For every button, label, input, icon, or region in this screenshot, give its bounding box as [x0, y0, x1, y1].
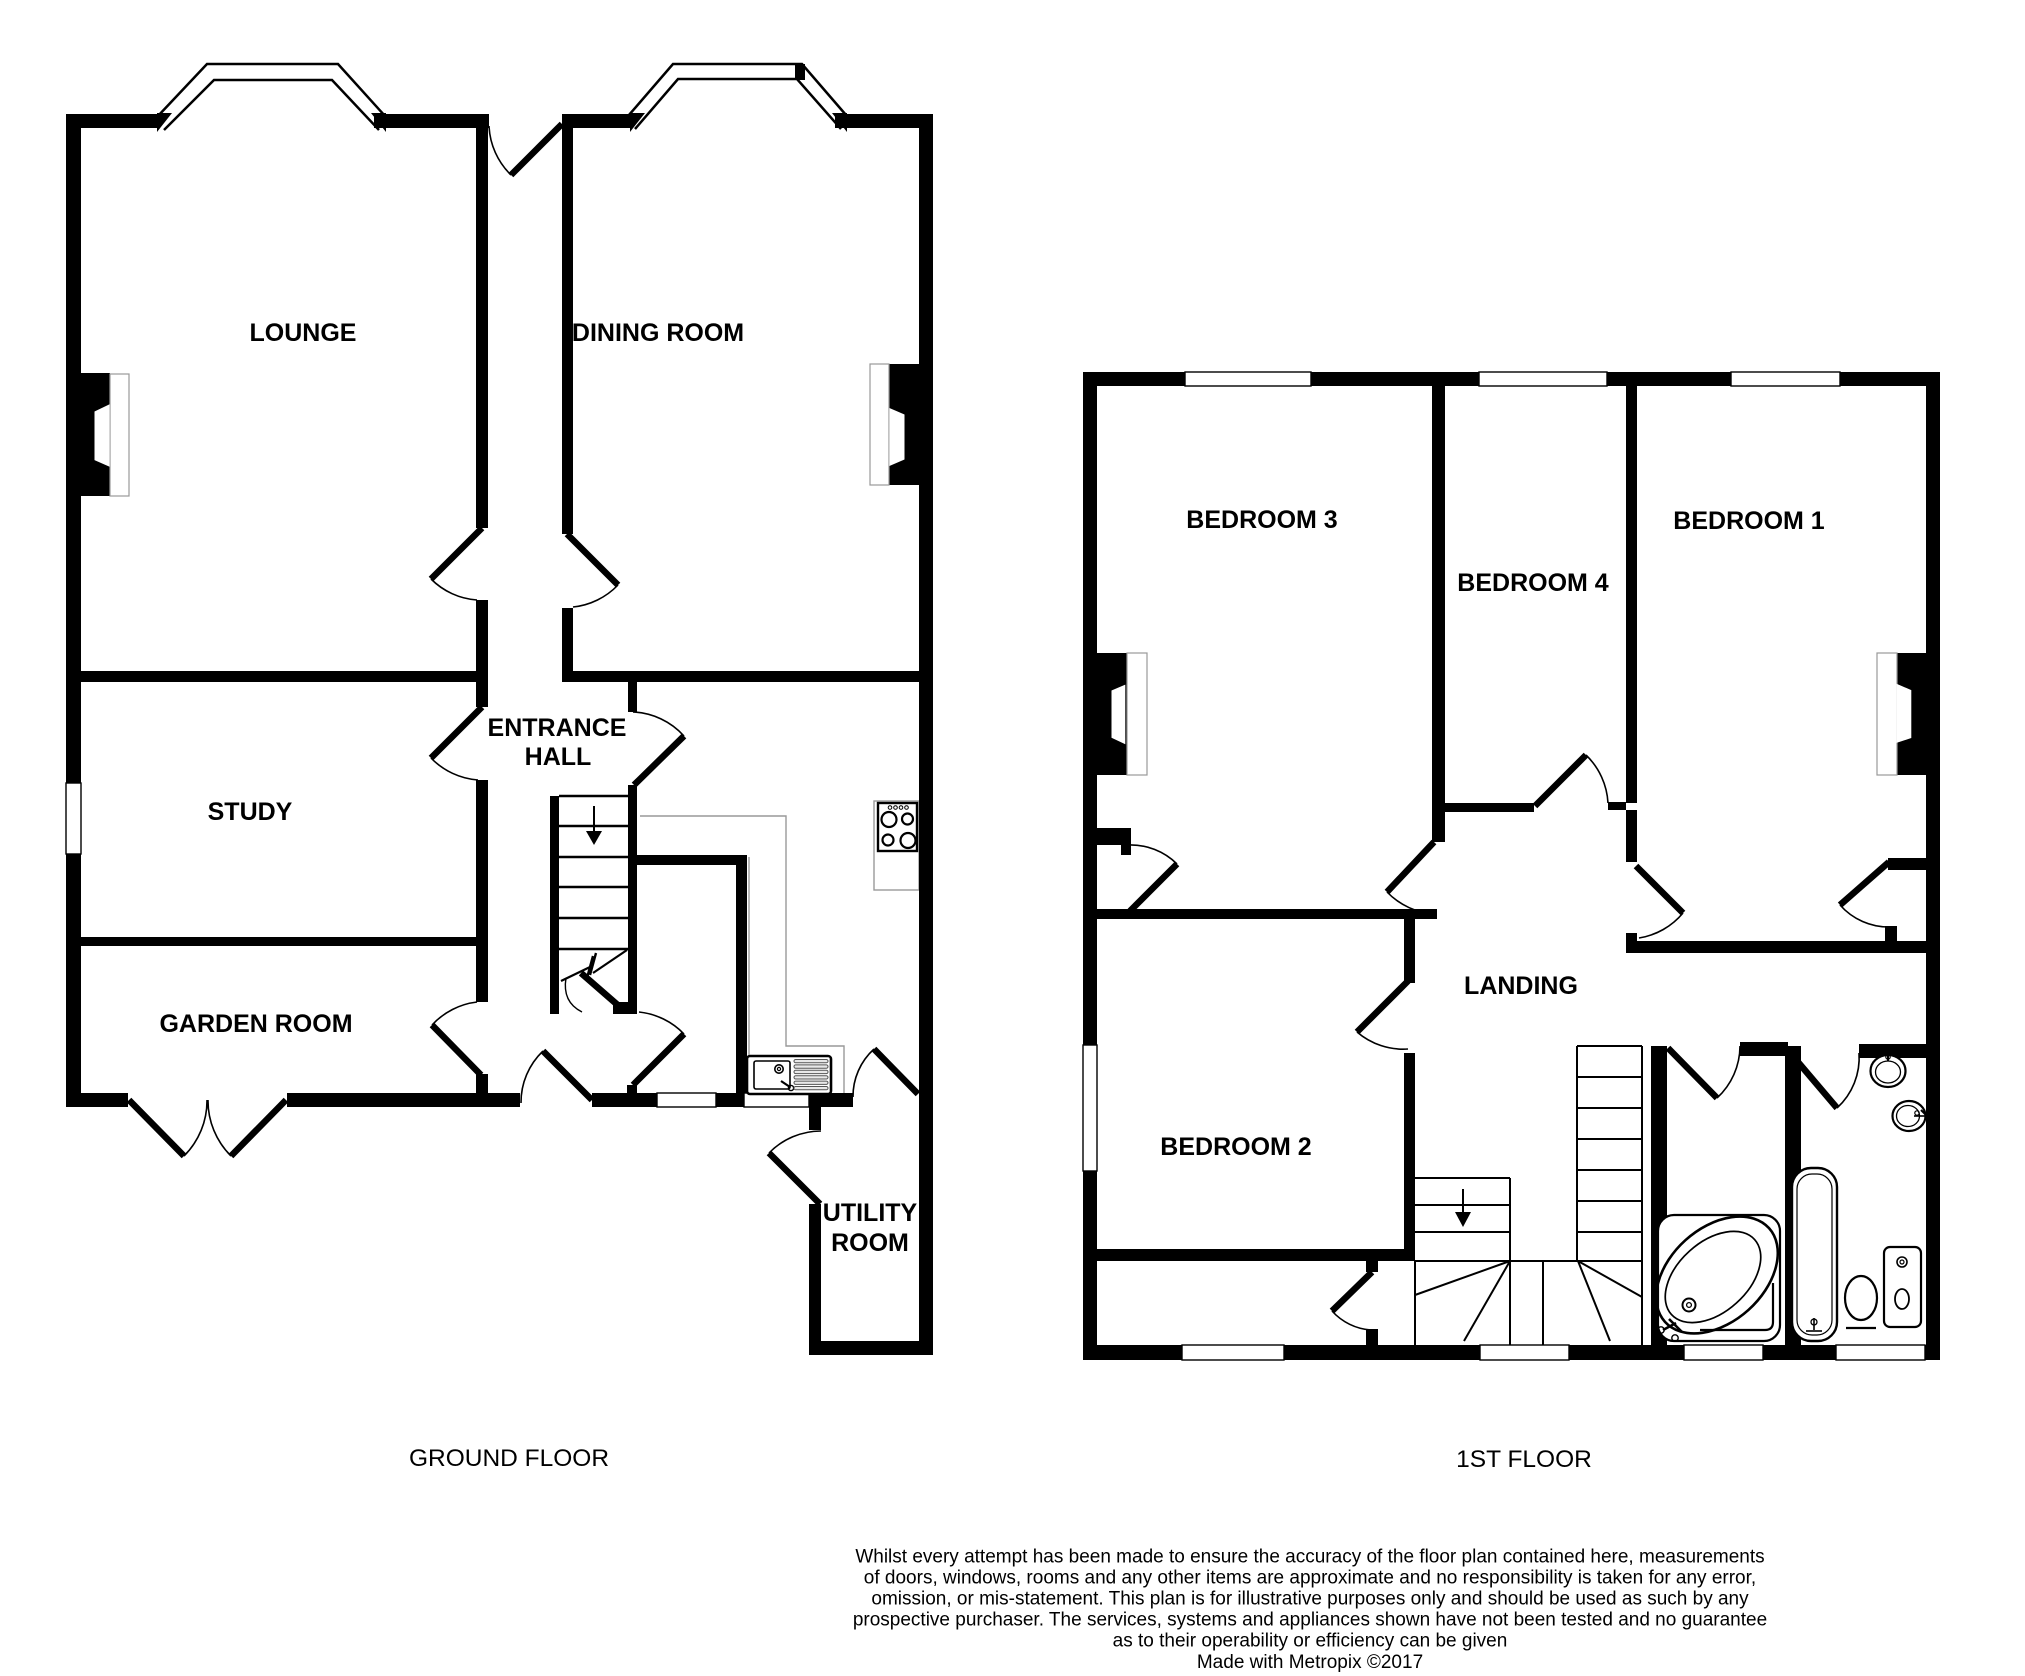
svg-text:DINING ROOM: DINING ROOM	[572, 319, 744, 347]
svg-text:omission, or mis-statement. Th: omission, or mis-statement. This plan is…	[871, 1589, 1749, 1610]
svg-text:LOUNGE: LOUNGE	[250, 319, 357, 347]
svg-text:Whilst every attempt has been: Whilst every attempt has been made to en…	[855, 1546, 1764, 1567]
svg-text:as to their operability or eff: as to their operability or efficiency ca…	[1113, 1631, 1508, 1652]
svg-text:1ST FLOOR: 1ST FLOOR	[1456, 1446, 1592, 1473]
svg-text:BEDROOM 1: BEDROOM 1	[1673, 507, 1825, 535]
svg-text:GARDEN ROOM: GARDEN ROOM	[159, 1010, 352, 1038]
svg-text:prospective purchaser. The ser: prospective purchaser. The services, sys…	[853, 1610, 1767, 1631]
svg-text:BEDROOM 2: BEDROOM 2	[1160, 1133, 1311, 1161]
svg-text:BEDROOM 3: BEDROOM 3	[1186, 506, 1337, 534]
svg-text:UTILITY: UTILITY	[823, 1199, 918, 1227]
svg-text:GROUND FLOOR: GROUND FLOOR	[409, 1445, 609, 1472]
svg-text:STUDY: STUDY	[208, 798, 293, 826]
svg-text:BEDROOM 4: BEDROOM 4	[1457, 569, 1609, 597]
svg-text:LANDING: LANDING	[1464, 972, 1578, 1000]
svg-text:ENTRANCE: ENTRANCE	[488, 714, 627, 742]
svg-text:HALL: HALL	[525, 743, 592, 771]
svg-text:Made with Metropix ©2017: Made with Metropix ©2017	[1197, 1652, 1423, 1673]
svg-text:ROOM: ROOM	[831, 1229, 909, 1257]
svg-text:of doors, windows, rooms and a: of doors, windows, rooms and any other i…	[864, 1567, 1756, 1588]
